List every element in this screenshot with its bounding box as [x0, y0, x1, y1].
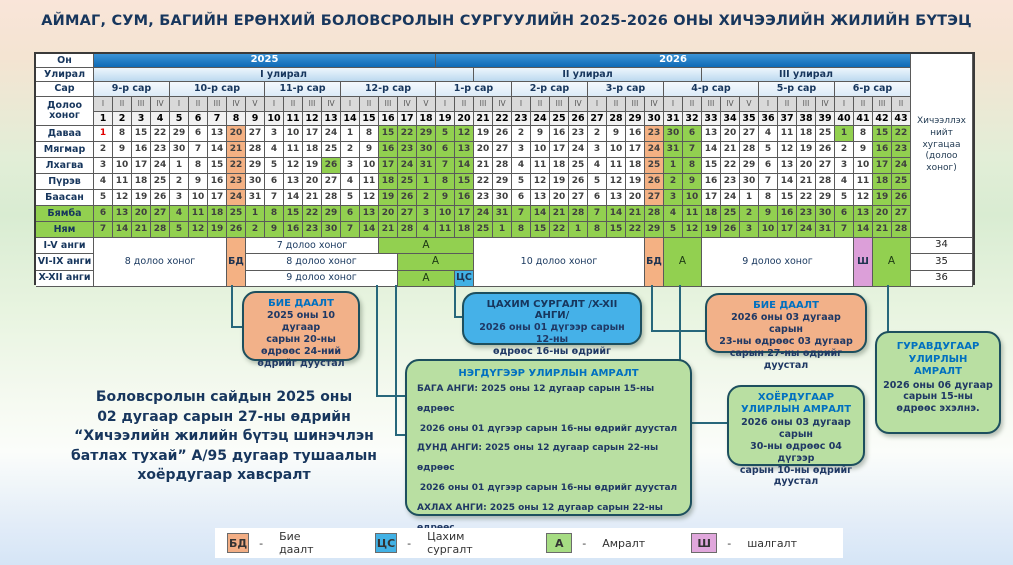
date-cell: 24 — [569, 142, 588, 158]
week-roman-cell: III — [132, 97, 151, 112]
date-cell: 22 — [474, 174, 493, 190]
date-cell: 12 — [455, 126, 474, 142]
legend-label: шалгалт — [747, 537, 797, 550]
date-cell: 30 — [740, 174, 759, 190]
band-segment-plain: 7 долоо хоног — [246, 238, 379, 254]
legend-label: Бие даалт — [279, 530, 329, 556]
date-cell: 17 — [702, 190, 721, 206]
date-cell: 15 — [455, 174, 474, 190]
class-row-label: X-XII анги — [36, 271, 94, 287]
date-cell: 18 — [702, 206, 721, 222]
date-cell: 26 — [645, 174, 664, 190]
week-number-cell: 3 — [132, 112, 151, 126]
date-cell: 17 — [379, 158, 398, 174]
quarter-cell: II улирал — [474, 68, 702, 82]
date-cell: 28 — [645, 206, 664, 222]
week-roman-cell: I — [265, 97, 284, 112]
date-cell: 15 — [531, 222, 550, 238]
legend-dash: - — [582, 537, 586, 550]
date-cell: 15 — [284, 206, 303, 222]
note-line: хоёрдугаар хавсралт — [48, 466, 400, 486]
date-cell: 11 — [436, 222, 455, 238]
date-cell: 20 — [227, 126, 246, 142]
week-number-cell: 13 — [322, 112, 341, 126]
date-cell: 12 — [284, 158, 303, 174]
date-cell: 22 — [398, 126, 417, 142]
date-cell: 23 — [892, 142, 911, 158]
date-cell: 28 — [493, 158, 512, 174]
date-cell: 20 — [132, 206, 151, 222]
date-cell: 31 — [664, 142, 683, 158]
band-segment-plain: 9 долоо хоног — [702, 238, 854, 287]
date-cell: 17 — [455, 206, 474, 222]
date-cell: 5 — [265, 158, 284, 174]
week-roman-cell: II — [455, 97, 474, 112]
week-roman-cell: IV — [398, 97, 417, 112]
legend-label: Амралт — [602, 537, 645, 550]
date-cell: 11 — [607, 158, 626, 174]
date-cell: 2 — [170, 174, 189, 190]
week-number-cell: 42 — [873, 112, 892, 126]
date-cell: 13 — [531, 190, 550, 206]
date-cell: 14 — [284, 190, 303, 206]
date-cell: 26 — [493, 126, 512, 142]
date-cell: 19 — [626, 174, 645, 190]
week-number-cell: 1 — [94, 112, 113, 126]
month-cell: 3-р сар — [588, 82, 664, 97]
date-cell: 8 — [683, 158, 702, 174]
band-segment-rest: А — [873, 238, 911, 287]
week-roman-cell: I — [94, 97, 113, 112]
date-cell: 5 — [170, 222, 189, 238]
class-row-label: VI-IX анги — [36, 254, 94, 270]
month-cell: 12-р сар — [341, 82, 436, 97]
date-cell: 14 — [854, 222, 873, 238]
date-cell: 31 — [417, 158, 436, 174]
month-cell: 1-р сар — [436, 82, 512, 97]
date-cell: 6 — [512, 190, 531, 206]
callout-line: өдрөөс 24-ний — [250, 346, 352, 358]
date-cell: 28 — [892, 222, 911, 238]
week-number-cell: 22 — [493, 112, 512, 126]
date-cell: 19 — [303, 158, 322, 174]
date-cell: 13 — [360, 206, 379, 222]
date-cell: 30 — [170, 142, 189, 158]
page-title: АЙМАГ, СУМ, БАГИЙН ЕРӨНХИЙ БОЛОВСРОЛЫН С… — [0, 13, 1013, 29]
date-cell: 8 — [588, 222, 607, 238]
date-cell: 8 — [265, 206, 284, 222]
date-cell: 23 — [227, 174, 246, 190]
date-cell: 19 — [474, 126, 493, 142]
date-cell: 13 — [455, 142, 474, 158]
date-cell: 7 — [683, 142, 702, 158]
callout-body: 2025 оны 10 дугаарсарын 20-ныөдрөөс 24-н… — [250, 310, 352, 369]
legend-dash: - — [727, 537, 731, 550]
callout-line: дуустал — [735, 476, 857, 488]
date-cell: 29 — [493, 174, 512, 190]
date-cell: 28 — [740, 142, 759, 158]
week-number-cell: 17 — [398, 112, 417, 126]
callout-title: ХОЁРДУГААР УЛИРЛЫН АМРАЛТ — [735, 392, 857, 416]
date-cell: 6 — [759, 158, 778, 174]
legend-item: А-Амралт — [546, 533, 645, 553]
date-cell: 24 — [474, 206, 493, 222]
date-cell: 15 — [132, 126, 151, 142]
date-cell: 25 — [151, 174, 170, 190]
date-cell: 29 — [816, 190, 835, 206]
date-cell: 30 — [322, 222, 341, 238]
school-year-table: ОнУлиралСарДолоо хоног20252026I улиралII… — [34, 52, 975, 285]
date-cell: 12 — [683, 222, 702, 238]
week-roman-cell: II — [607, 97, 626, 112]
date-cell: 11 — [854, 174, 873, 190]
month-cell: 9-р сар — [94, 82, 170, 97]
date-cell: 20 — [474, 142, 493, 158]
date-cell: 7 — [436, 158, 455, 174]
week-roman-cell: II — [189, 97, 208, 112]
legend-dash: - — [259, 537, 263, 550]
week-roman-cell: V — [740, 97, 759, 112]
date-cell: 3 — [835, 158, 854, 174]
callout-third-quarter-break: ГУРАВДУГААР УЛИРЛЫН АМРАЛТ 2026 оны 06 д… — [875, 331, 1001, 434]
quarter-cell: I улирал — [94, 68, 474, 82]
date-cell: 23 — [303, 222, 322, 238]
date-cell: 12 — [113, 190, 132, 206]
legend-label: Цахим сургалт — [427, 530, 500, 556]
date-cell: 10 — [360, 158, 379, 174]
date-cell: 2 — [588, 126, 607, 142]
date-cell: 21 — [873, 222, 892, 238]
date-cell: 28 — [816, 174, 835, 190]
date-cell: 4 — [759, 126, 778, 142]
callout-line: сарын 10-ны өдрийг — [735, 465, 857, 477]
date-cell: 28 — [246, 142, 265, 158]
week-number-cell: 33 — [702, 112, 721, 126]
date-cell: 9 — [607, 126, 626, 142]
date-cell: 20 — [303, 174, 322, 190]
date-cell: 25 — [645, 158, 664, 174]
date-cell: 29 — [645, 222, 664, 238]
callout-title: БИЕ ДААЛТ — [250, 298, 352, 309]
week-number-cell: 43 — [892, 112, 911, 126]
week-roman-cell: V — [246, 97, 265, 112]
week-number-cell: 37 — [778, 112, 797, 126]
date-cell: 7 — [265, 190, 284, 206]
date-cell: 16 — [778, 206, 797, 222]
date-cell: 10 — [854, 158, 873, 174]
date-cell: 1 — [740, 190, 759, 206]
callout-line: өдрөөс эхэлнэ. — [883, 403, 993, 415]
legend-dash: - — [407, 537, 411, 550]
date-cell: 12 — [854, 190, 873, 206]
date-cell: 7 — [189, 142, 208, 158]
date-cell: 4 — [588, 158, 607, 174]
callout-title: ГУРАВДУГААР УЛИРЛЫН АМРАЛТ — [883, 341, 993, 379]
date-cell: 25 — [892, 174, 911, 190]
callout-first-quarter-break: НЭГДҮГЭЭР УЛИРЛЫН АМРАЛТ БАГА АНГИ: 2025… — [405, 359, 692, 516]
date-cell: 21 — [379, 222, 398, 238]
date-cell: 26 — [151, 190, 170, 206]
date-cell: 19 — [873, 190, 892, 206]
teaching-weeks-total: 35 — [911, 254, 973, 270]
band-segment-rest: А — [398, 271, 455, 287]
month-cell: 10-р сар — [170, 82, 265, 97]
week-number-cell: 6 — [189, 112, 208, 126]
date-cell: 10 — [284, 126, 303, 142]
week-roman-cell: I — [835, 97, 854, 112]
date-cell: 8 — [189, 158, 208, 174]
day-label: Даваа — [36, 126, 94, 142]
date-cell: 16 — [379, 142, 398, 158]
week-roman-cell: II — [778, 97, 797, 112]
date-cell: 9 — [113, 142, 132, 158]
week-roman-cell: II — [854, 97, 873, 112]
date-cell: 13 — [113, 206, 132, 222]
date-cell: 27 — [892, 206, 911, 222]
date-cell: 14 — [778, 174, 797, 190]
date-cell: 15 — [607, 222, 626, 238]
week-roman-cell: IV — [569, 97, 588, 112]
week-number-cell: 32 — [683, 112, 702, 126]
week-number-cell: 9 — [246, 112, 265, 126]
date-cell: 25 — [322, 142, 341, 158]
band-segment-rest: А — [664, 238, 702, 287]
date-cell: 14 — [607, 206, 626, 222]
date-cell: 1 — [94, 126, 113, 142]
date-cell: 19 — [797, 142, 816, 158]
date-cell: 28 — [151, 222, 170, 238]
date-cell: 13 — [284, 174, 303, 190]
date-cell: 1 — [170, 158, 189, 174]
day-label: Ням — [36, 222, 94, 238]
date-cell: 12 — [778, 142, 797, 158]
note-line: 02 дугаар сарын 27-ны өдрийн — [48, 408, 400, 428]
week-roman-cell: II — [113, 97, 132, 112]
date-cell: 30 — [246, 174, 265, 190]
date-cell: 18 — [455, 222, 474, 238]
date-cell: 6 — [683, 126, 702, 142]
date-cell: 21 — [626, 206, 645, 222]
date-cell: 16 — [702, 174, 721, 190]
date-cell: 22 — [892, 126, 911, 142]
date-cell: 23 — [398, 142, 417, 158]
date-cell: 28 — [569, 206, 588, 222]
date-cell: 7 — [588, 206, 607, 222]
date-cell: 7 — [835, 222, 854, 238]
week-roman-cell: II — [284, 97, 303, 112]
date-cell: 25 — [227, 206, 246, 222]
date-cell: 22 — [303, 206, 322, 222]
date-cell: 4 — [417, 222, 436, 238]
date-cell: 25 — [816, 126, 835, 142]
date-cell: 8 — [759, 190, 778, 206]
date-cell: 15 — [778, 190, 797, 206]
callout-line: 23-ны өдрөөс 03 дугаар — [713, 336, 859, 348]
callout-title: ЦАХИМ СУРГАЛТ /X-XII АНГИ/ — [470, 299, 634, 321]
date-cell: 3 — [588, 142, 607, 158]
date-cell: 29 — [740, 158, 759, 174]
date-cell: 16 — [626, 126, 645, 142]
date-cell: 9 — [531, 126, 550, 142]
date-cell: 18 — [550, 158, 569, 174]
date-cell: 28 — [322, 190, 341, 206]
callout-body: 2026 оны 06 дугаарсарын 15-ныөдрөөс эхэл… — [883, 380, 993, 416]
date-cell: 10 — [189, 190, 208, 206]
date-cell: 27 — [740, 126, 759, 142]
callout-line: 2026 оны 01 дүгээр сарын 16-ны өдрийг ду… — [413, 479, 684, 499]
week-roman-cell: IV — [645, 97, 664, 112]
callout-line: өдрийг дуустал — [250, 358, 352, 370]
date-cell: 7 — [759, 174, 778, 190]
date-cell: 27 — [398, 206, 417, 222]
date-cell: 10 — [607, 142, 626, 158]
callout-second-quarter-break: ХОЁРДУГААР УЛИРЛЫН АМРАЛТ 2026 оны 03 ду… — [727, 385, 865, 466]
year-cell: 2026 — [436, 54, 911, 68]
date-cell: 18 — [132, 174, 151, 190]
legend-item: БД-Бие даалт — [227, 530, 329, 556]
date-cell: 23 — [569, 126, 588, 142]
date-cell: 24 — [721, 190, 740, 206]
date-cell: 5 — [436, 126, 455, 142]
date-cell: 7 — [341, 222, 360, 238]
date-cell: 21 — [474, 158, 493, 174]
date-cell: 23 — [797, 206, 816, 222]
date-cell: 3 — [512, 142, 531, 158]
date-cell: 8 — [360, 126, 379, 142]
date-cell: 4 — [664, 206, 683, 222]
quarter-cell: III улирал — [702, 68, 911, 82]
date-cell: 26 — [892, 190, 911, 206]
date-cell: 3 — [740, 222, 759, 238]
month-cell: 2-р сар — [512, 82, 588, 97]
date-cell: 16 — [455, 190, 474, 206]
date-cell: 11 — [189, 206, 208, 222]
week-roman-cell: I — [588, 97, 607, 112]
callout-line: 30-ны өдрөөс 04 дүгээр — [735, 441, 857, 465]
week-roman-cell: IV — [227, 97, 246, 112]
week-roman-cell: III — [550, 97, 569, 112]
callout-title: БИЕ ДААЛТ — [713, 300, 859, 311]
date-cell: 1 — [569, 222, 588, 238]
week-roman-cell: V — [417, 97, 436, 112]
date-cell: 9 — [360, 142, 379, 158]
date-cell: 9 — [436, 190, 455, 206]
date-cell: 25 — [569, 158, 588, 174]
week-roman-cell: IV — [721, 97, 740, 112]
date-cell: 2 — [341, 142, 360, 158]
date-cell: 5 — [94, 190, 113, 206]
date-cell: 10 — [436, 206, 455, 222]
date-cell: 31 — [493, 206, 512, 222]
week-number-cell: 40 — [835, 112, 854, 126]
date-cell: 8 — [436, 174, 455, 190]
day-label: Баасан — [36, 190, 94, 206]
week-roman-cell: I — [341, 97, 360, 112]
date-cell: 17 — [303, 126, 322, 142]
week-roman-cell: III — [702, 97, 721, 112]
date-cell: 10 — [759, 222, 778, 238]
year-cell: 2025 — [94, 54, 436, 68]
connector-line — [887, 285, 889, 332]
date-cell: 20 — [797, 158, 816, 174]
date-cell: 10 — [113, 158, 132, 174]
date-cell: 6 — [341, 206, 360, 222]
date-cell: 20 — [873, 206, 892, 222]
date-cell: 18 — [379, 174, 398, 190]
connector-line — [651, 285, 653, 332]
date-cell: 19 — [702, 222, 721, 238]
day-label: Мягмар — [36, 142, 94, 158]
total-weeks-header: Хичээллэх нийт хугацаа (долоо хоног) — [911, 54, 973, 238]
page-background: АЙМАГ, СУМ, БАГИЙН ЕРӨНХИЙ БОЛОВСРОЛЫН С… — [0, 0, 1013, 565]
week-number-cell: 25 — [550, 112, 569, 126]
week-number-cell: 24 — [531, 112, 550, 126]
date-cell: 25 — [474, 222, 493, 238]
callout-elearning: ЦАХИМ СУРГАЛТ /X-XII АНГИ/ 2026 оны 01 д… — [462, 292, 642, 345]
callout-independent-work-2026: БИЕ ДААЛТ 2026 оны 03 дугаар сарын23-ны … — [705, 293, 867, 353]
week-number-cell: 5 — [170, 112, 189, 126]
legend-swatch: А — [546, 533, 572, 553]
date-cell: 23 — [151, 142, 170, 158]
day-label: Лхагва — [36, 158, 94, 174]
date-cell: 20 — [626, 190, 645, 206]
callout-line: 2026 оны 01 дүгээр сарын 12-ны — [470, 322, 634, 346]
month-cell: 5-р сар — [759, 82, 835, 97]
band-segment-cs: ЦС — [455, 271, 474, 287]
ministry-order-note: Боловсролын сайдын 2025 оны02 дугаар сар… — [48, 388, 400, 486]
date-cell: 22 — [227, 158, 246, 174]
date-cell: 27 — [569, 190, 588, 206]
date-cell: 15 — [873, 126, 892, 142]
date-cell: 5 — [341, 190, 360, 206]
week-number-cell: 38 — [797, 112, 816, 126]
date-cell: 10 — [531, 142, 550, 158]
week-number-cell: 39 — [816, 112, 835, 126]
week-number-cell: 8 — [227, 112, 246, 126]
date-cell: 2 — [417, 190, 436, 206]
callout-line: ДУНД АНГИ: 2025 оны 12 дугаар сарын 22-н… — [413, 439, 684, 479]
band-segment-plain: 8 долоо хоног — [94, 238, 227, 287]
date-cell: 17 — [778, 222, 797, 238]
date-cell: 1 — [835, 126, 854, 142]
week-number-cell: 10 — [265, 112, 284, 126]
date-cell: 6 — [436, 142, 455, 158]
date-cell: 1 — [246, 206, 265, 222]
week-number-cell: 18 — [417, 112, 436, 126]
week-number-cell: 29 — [626, 112, 645, 126]
date-cell: 6 — [265, 174, 284, 190]
date-cell: 31 — [816, 222, 835, 238]
date-cell: 2 — [94, 142, 113, 158]
date-cell: 9 — [683, 174, 702, 190]
week-number-cell: 21 — [474, 112, 493, 126]
date-cell: 1 — [493, 222, 512, 238]
date-cell: 27 — [493, 142, 512, 158]
date-cell: 24 — [227, 190, 246, 206]
week-roman-cell: IV — [151, 97, 170, 112]
date-cell: 18 — [797, 126, 816, 142]
date-cell: 1 — [341, 126, 360, 142]
date-cell: 3 — [170, 190, 189, 206]
callout-line: 2026 оны 01 дүгээр сарын 16-ны өдрийг ду… — [413, 420, 684, 440]
legend-swatch: ЦС — [375, 533, 397, 553]
date-cell: 16 — [284, 222, 303, 238]
date-cell: 16 — [550, 126, 569, 142]
date-cell: 16 — [208, 174, 227, 190]
date-cell: 20 — [721, 126, 740, 142]
date-cell: 3 — [417, 206, 436, 222]
date-cell: 22 — [550, 222, 569, 238]
